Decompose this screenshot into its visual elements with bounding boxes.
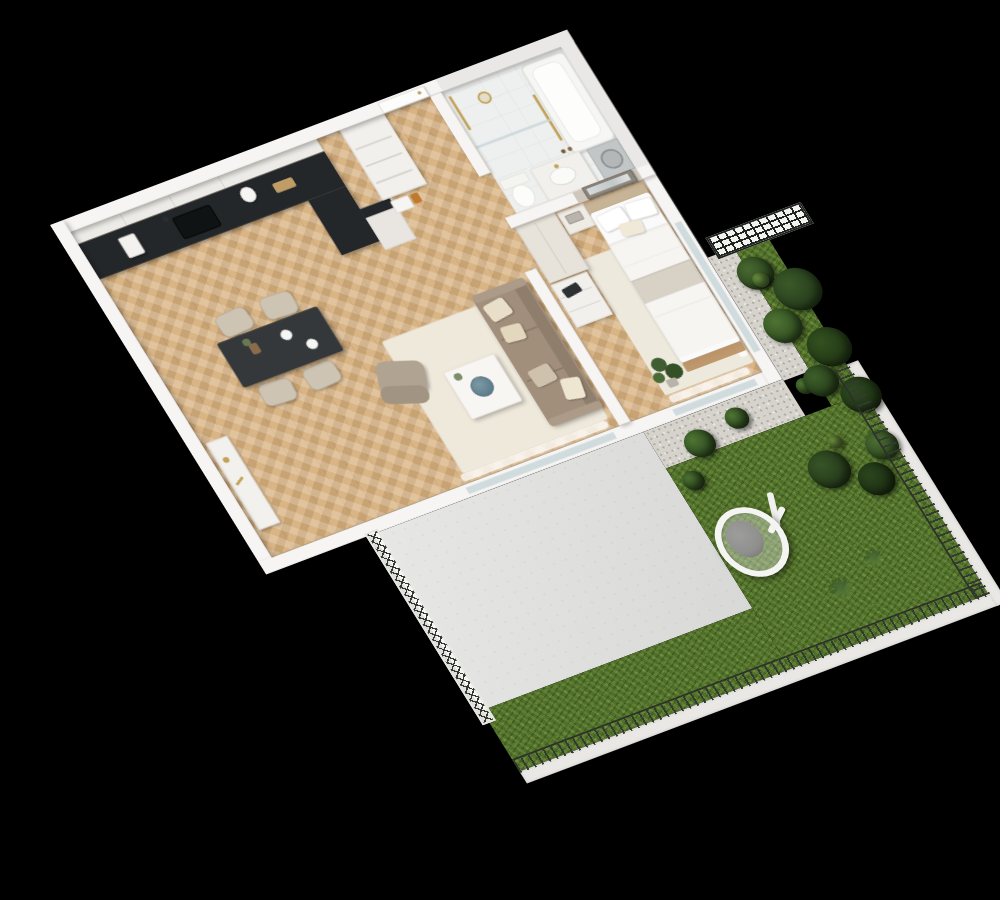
accent-chair-back — [379, 385, 431, 405]
scene-stage — [0, 0, 1000, 900]
accent-chair — [374, 360, 431, 406]
apartment — [50, 0, 690, 225]
floor-plan — [50, 0, 1000, 848]
